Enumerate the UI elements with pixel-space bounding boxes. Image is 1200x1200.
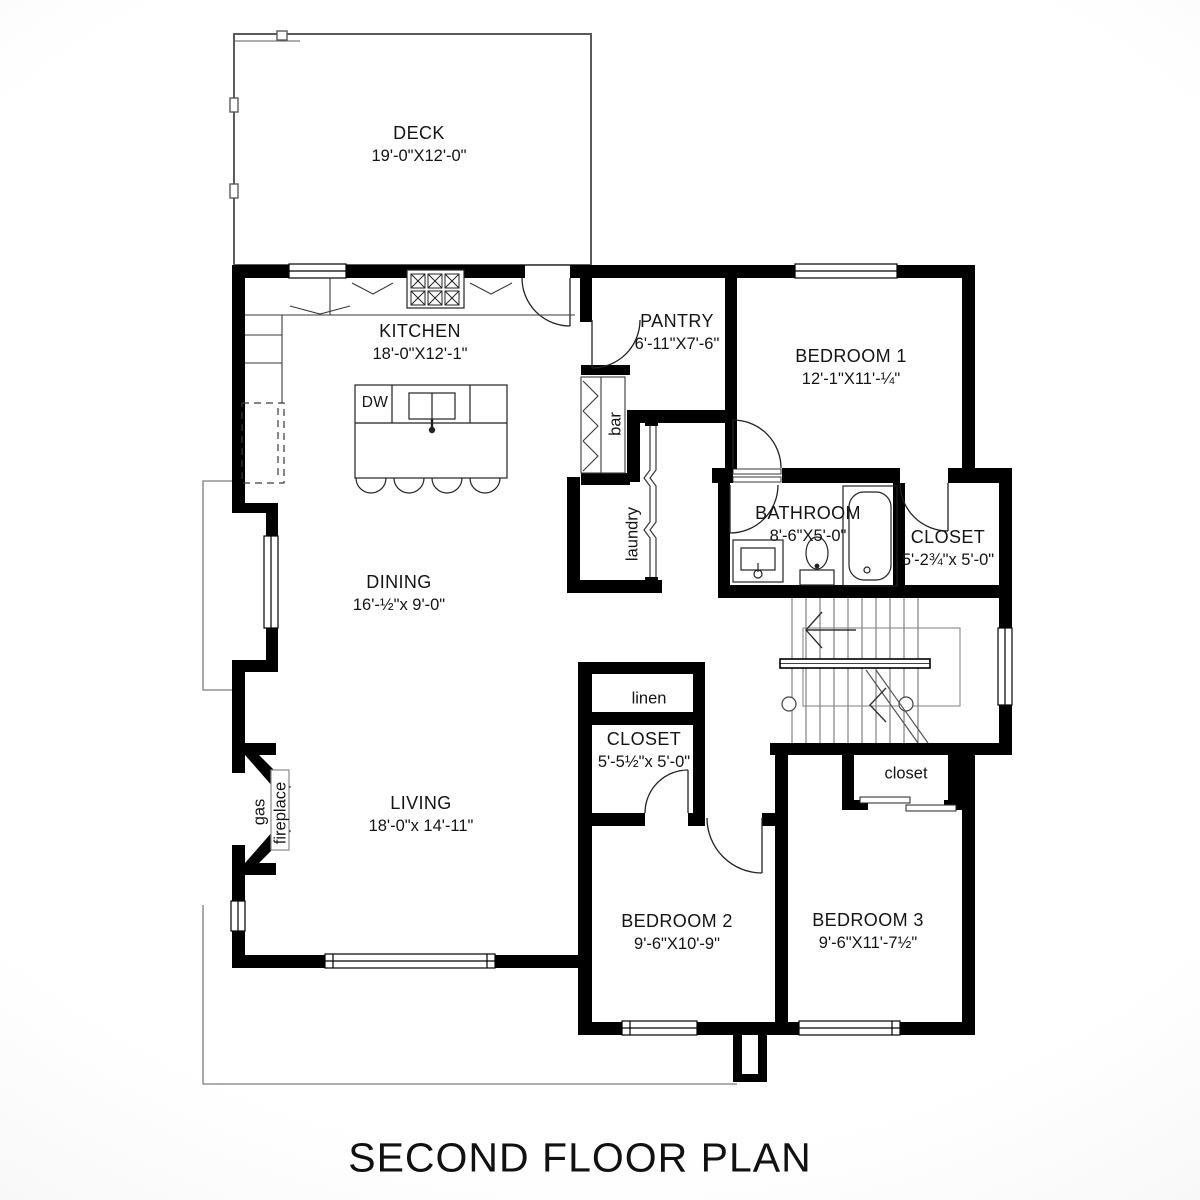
room-name: KITCHEN: [372, 320, 467, 344]
room-name: BEDROOM 2: [621, 910, 733, 934]
bar-label: bar: [607, 412, 626, 436]
kitchen-window: [289, 264, 346, 278]
dishwasher-label: DW: [362, 394, 388, 412]
room-dims: 8'-6"X5'-0": [755, 526, 861, 548]
room-label-bedroom3: BEDROOM 3 9'-6"X11'-7½": [812, 909, 924, 955]
dining-bay-window: [264, 536, 278, 628]
room-name: DECK: [371, 122, 466, 146]
room-label-bedroom2: BEDROOM 2 9'-6"X10'-9": [621, 910, 733, 956]
laundry-label: laundry: [624, 507, 643, 561]
room-name: BEDROOM 3: [812, 909, 924, 933]
newel-post: [899, 697, 913, 711]
room-label-hall-closet: CLOSET 5'-5½"x 5'-0": [598, 728, 690, 774]
plan-title: SECOND FLOOR PLAN: [348, 1135, 812, 1182]
room-name: CLOSET: [598, 728, 690, 752]
bedroom1-door: [733, 420, 781, 468]
room-label-deck: DECK 19'-0"X12'-0": [371, 122, 466, 168]
room-dims: 12'-1"X11'-¼": [795, 369, 907, 391]
room-dims: 5'-2¾"x 5'-0": [902, 550, 994, 572]
bedroom3-window: [799, 1021, 900, 1035]
floor-plan-drawing: [0, 0, 1200, 1200]
room-dims: 9'-6"X11'-7½": [812, 933, 924, 955]
deck-entry-door: [522, 278, 570, 326]
room-label-kitchen: KITCHEN 18'-0"X12'-1": [372, 320, 467, 366]
room-dims: 18'-0"X12'-1": [372, 344, 467, 366]
room-dims: 5'-5½"x 5'-0": [598, 752, 690, 774]
room-dims: 16'-½"x 9'-0": [353, 595, 445, 617]
room-name: DINING: [353, 571, 445, 595]
room-label-living: LIVING 18'-0"x 14'-11": [369, 792, 474, 838]
corner-detail: [290, 306, 350, 314]
room-name: LIVING: [369, 792, 474, 816]
refrigerator: [242, 403, 284, 483]
room-label-pantry: PANTRY 6'-11"X7'-6": [635, 310, 720, 356]
bedroom2-window: [622, 1021, 697, 1035]
room-name: BATHROOM: [755, 502, 861, 526]
room-dims: 6'-11"X7'-6": [635, 334, 720, 356]
room-label-bath-closet: CLOSET 5'-2¾"x 5'-0": [902, 526, 994, 572]
small-closet-label: closet: [884, 765, 927, 784]
living-left-window: [231, 901, 245, 931]
floor-plan-canvas: DECK 19'-0"X12'-0" KITCHEN 18'-0"X12'-1"…: [0, 0, 1200, 1200]
fireplace-label: fireplace: [272, 782, 291, 844]
pantry-door: [592, 320, 640, 368]
room-label-dining: DINING 16'-½"x 9'-0": [353, 571, 445, 617]
bar-stools: [356, 478, 500, 493]
newel-post: [782, 697, 796, 711]
stairs: [780, 598, 960, 743]
gas-label: gas: [251, 799, 270, 826]
bath-closet-door: [900, 483, 948, 531]
bedroom1-window: [795, 264, 897, 278]
cooktop: [407, 270, 464, 308]
hall-closet-door: [645, 770, 688, 813]
room-label-bathroom: BATHROOM 8'-6"X5'-0": [755, 502, 861, 548]
stair-landing-window: [998, 628, 1012, 705]
room-name: CLOSET: [902, 526, 994, 550]
room-label-bedroom1: BEDROOM 1 12'-1"X11'-¼": [795, 345, 907, 391]
room-dims: 9'-6"X10'-9": [621, 934, 733, 956]
stair-railing: [780, 659, 930, 668]
linen-label: linen: [632, 690, 667, 709]
room-name: PANTRY: [635, 310, 720, 334]
small-closet-sliding-door: [860, 797, 956, 811]
room-dims: 19'-0"X12'-0": [371, 146, 466, 168]
room-dims: 18'-0"x 14'-11": [369, 816, 474, 838]
room-name: BEDROOM 1: [795, 345, 907, 369]
laundry-doors: [644, 426, 656, 577]
living-bottom-window: [325, 954, 495, 968]
bedroom2-door: [707, 818, 762, 873]
